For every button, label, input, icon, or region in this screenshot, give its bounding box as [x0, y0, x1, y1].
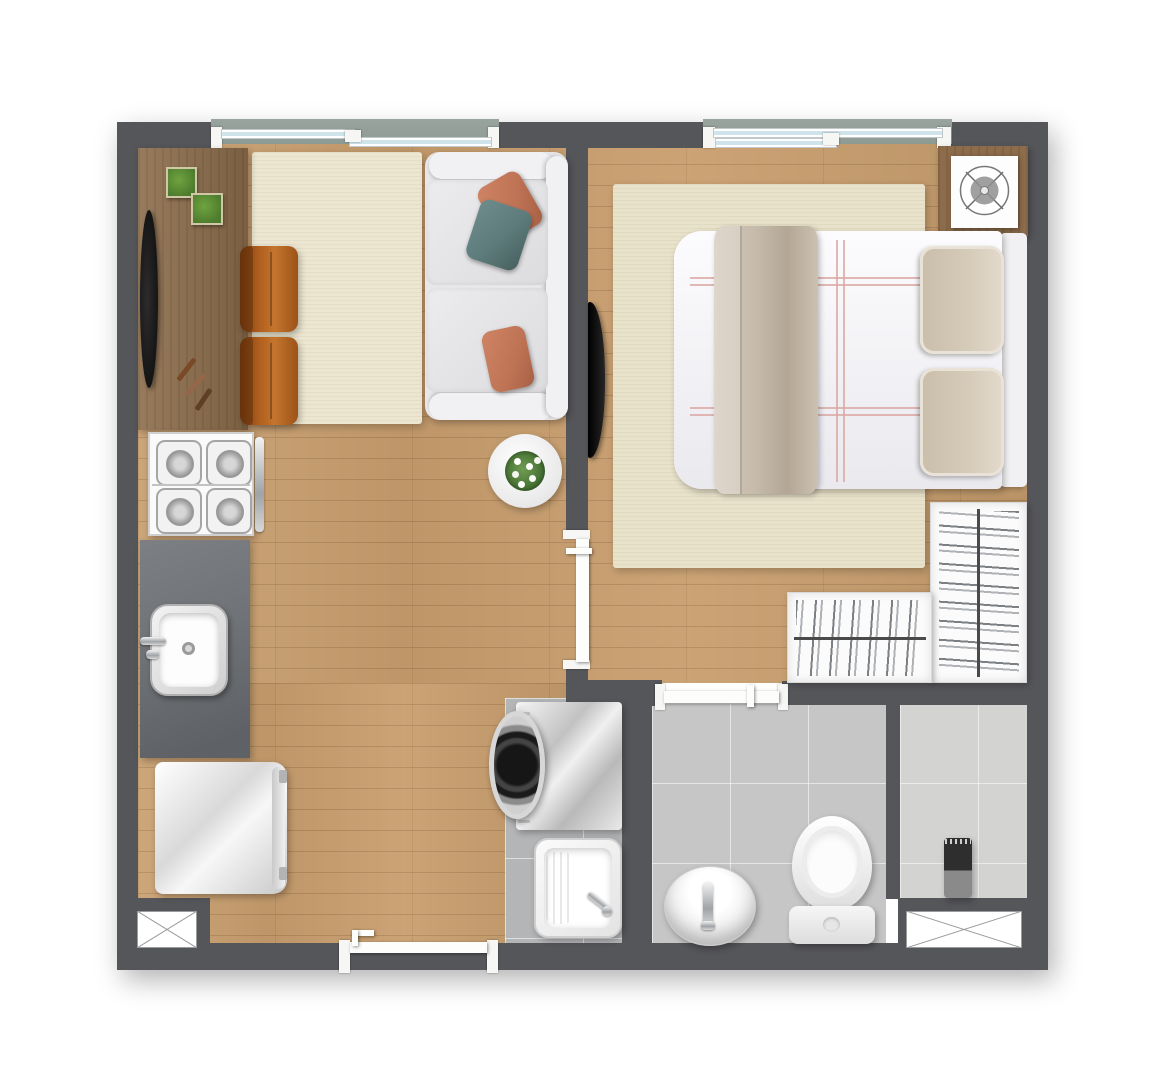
- fan-blades-icon: [957, 163, 1012, 218]
- toilet-tank: [789, 906, 875, 944]
- basin-faucet-icon: [703, 882, 713, 926]
- blanket-fold: [714, 226, 742, 494]
- kitchen-sink: [150, 604, 228, 696]
- shaft-x-icon: [137, 911, 197, 948]
- wall-bathroom-shower: [886, 703, 900, 899]
- bathroom-door-jamb-right: [778, 684, 788, 710]
- entry-door-jamb-left: [339, 940, 350, 973]
- tv-living-room: [140, 210, 158, 388]
- sofa-armrest-bottom: [429, 393, 553, 420]
- wall-laundry-bathroom: [622, 698, 652, 945]
- wall-right: [1027, 122, 1048, 968]
- laundry-sink-ribs: [546, 852, 572, 924]
- shower-column: [944, 838, 972, 898]
- bedroom-door: [576, 539, 589, 662]
- burner-icon: [206, 488, 252, 534]
- bedroom-door-jamb-top: [563, 530, 590, 539]
- kitchen-faucet-knob: [146, 650, 159, 659]
- bathroom-sliding-door: [664, 691, 779, 703]
- chair-backrest: [240, 246, 253, 332]
- fridge-hinge: [279, 867, 287, 880]
- burner-icon: [206, 440, 252, 486]
- shaft-x-icon: [906, 911, 1022, 948]
- entry-door-handle-post: [352, 930, 358, 946]
- sheet-stripe: [843, 240, 845, 482]
- bed-headboard: [1000, 233, 1027, 487]
- flower-petals-icon: [514, 458, 521, 465]
- lounge-chair: [240, 337, 298, 425]
- lounge-chair: [240, 246, 298, 332]
- bathroom-door-handle: [747, 685, 754, 707]
- laundry-sink: [534, 838, 622, 938]
- sheet-stripe: [836, 240, 838, 482]
- washer-drum-icon: [489, 711, 545, 819]
- toilet: [789, 816, 875, 946]
- toilet-bowl: [792, 816, 872, 910]
- shower-jets-icon: [945, 839, 971, 844]
- plant-pot-icon: [191, 193, 223, 225]
- cooktop: [148, 432, 254, 536]
- entry-door-jamb-right: [487, 940, 498, 973]
- bedroom-door-handle: [566, 548, 592, 554]
- wardrobe-rail: [794, 637, 926, 640]
- burner-icon: [156, 488, 202, 534]
- bedroom-window-latch: [823, 133, 839, 145]
- wall-bathroom-top: [782, 681, 1028, 705]
- kitchen-faucet-icon: [140, 637, 166, 645]
- bed-blanket: [714, 226, 818, 494]
- wardrobe-vertical-section: [930, 502, 1027, 683]
- table-flowers-icon: [505, 451, 545, 491]
- wall-divider-bedroom-upper: [566, 148, 588, 537]
- fan-icon: [957, 163, 1012, 218]
- laundry-faucet-knob: [602, 906, 612, 916]
- wall-top-middle-segment: [497, 122, 705, 148]
- cooktop-divider: [152, 484, 250, 486]
- chair-seam: [270, 343, 272, 419]
- floor-plan: [0, 0, 1164, 1079]
- wardrobe-rail: [977, 509, 980, 677]
- living-window-pane-2: [349, 137, 492, 147]
- wardrobe-horizontal-section: [787, 592, 932, 683]
- bedroom-window-pane-2: [715, 138, 837, 148]
- burner-icon: [156, 440, 202, 486]
- bed-pillow: [920, 246, 1004, 354]
- basin-faucet-knob: [701, 921, 715, 930]
- living-window-latch: [345, 130, 361, 142]
- service-shaft-icon: [137, 911, 197, 948]
- fridge-hinge: [279, 770, 287, 783]
- entry-door: [350, 942, 487, 953]
- sofa-backrest: [546, 156, 568, 418]
- sink-drain-icon: [182, 642, 195, 655]
- cooktop-handle: [255, 437, 264, 532]
- toilet-flush-button: [823, 917, 840, 932]
- sofa-armrest-top: [429, 152, 553, 179]
- bed-pillow: [920, 368, 1004, 476]
- wall-left: [117, 122, 138, 968]
- toilet-seat-opening: [802, 826, 862, 898]
- living-window-pane-1: [221, 129, 355, 139]
- chair-backrest: [240, 337, 253, 425]
- refrigerator: [155, 762, 287, 894]
- chair-seam: [270, 252, 272, 326]
- service-shaft-icon: [906, 911, 1022, 948]
